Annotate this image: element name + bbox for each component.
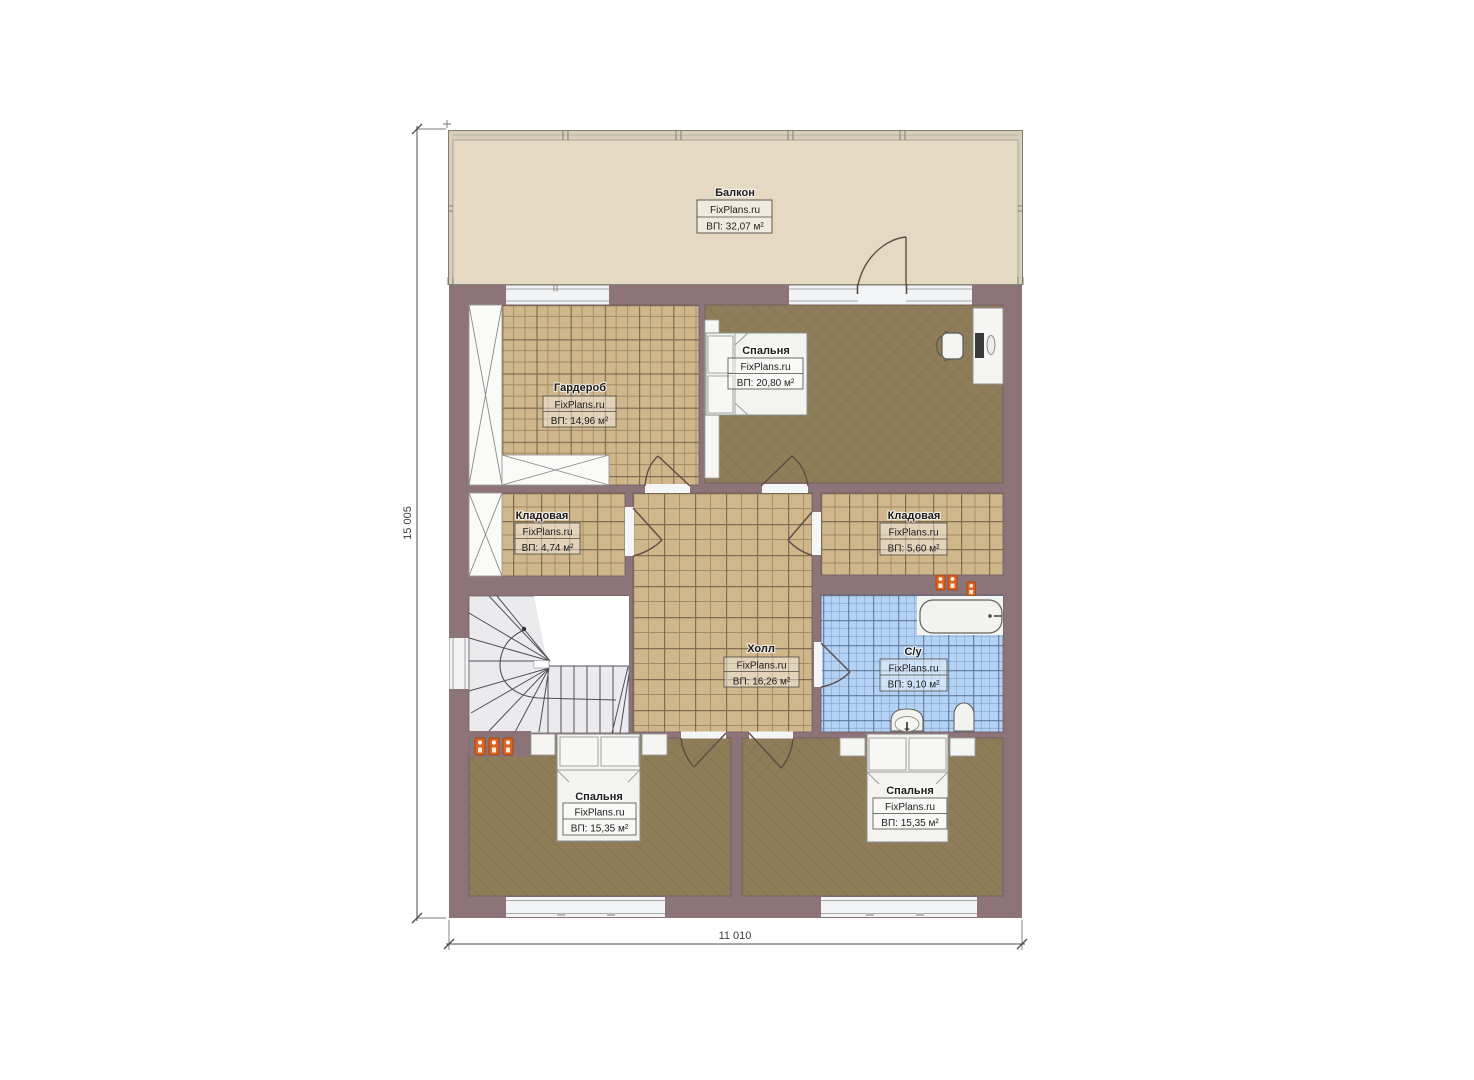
- svg-text:FixPlans.ru: FixPlans.ru: [740, 362, 790, 373]
- svg-text:15 005: 15 005: [402, 506, 414, 540]
- svg-text:FixPlans.ru: FixPlans.ru: [888, 664, 938, 675]
- svg-text:Спальня: Спальня: [742, 345, 790, 357]
- svg-text:FixPlans.ru: FixPlans.ru: [522, 527, 572, 538]
- svg-text:С/у: С/у: [904, 646, 922, 658]
- svg-text:Холл: Холл: [747, 643, 775, 655]
- svg-text:Спальня: Спальня: [575, 791, 623, 803]
- svg-text:Балкон: Балкон: [715, 187, 755, 199]
- svg-text:ВП: 16,26 м²: ВП: 16,26 м²: [733, 677, 791, 688]
- svg-text:FixPlans.ru: FixPlans.ru: [885, 802, 935, 813]
- svg-text:11 010: 11 010: [719, 930, 752, 942]
- svg-text:ВП: 32,07 м²: ВП: 32,07 м²: [706, 222, 764, 233]
- svg-text:FixPlans.ru: FixPlans.ru: [710, 205, 760, 216]
- svg-text:Кладовая: Кладовая: [516, 510, 569, 522]
- svg-text:ВП: 15,35 м²: ВП: 15,35 м²: [571, 824, 629, 835]
- svg-text:FixPlans.ru: FixPlans.ru: [574, 808, 624, 819]
- svg-text:Гардероб: Гардероб: [554, 382, 606, 394]
- svg-text:FixPlans.ru: FixPlans.ru: [736, 661, 786, 672]
- svg-text:ВП: 15,35 м²: ВП: 15,35 м²: [881, 818, 939, 829]
- svg-text:ВП: 4,74 м²: ВП: 4,74 м²: [522, 543, 575, 554]
- svg-text:ВП: 5,60 м²: ВП: 5,60 м²: [888, 544, 941, 555]
- svg-text:ВП: 9,10 м²: ВП: 9,10 м²: [888, 680, 941, 691]
- svg-text:FixPlans.ru: FixPlans.ru: [888, 528, 938, 539]
- svg-text:ВП: 20,80 м²: ВП: 20,80 м²: [737, 378, 795, 389]
- svg-text:Кладовая: Кладовая: [888, 510, 941, 522]
- svg-text:Спальня: Спальня: [886, 785, 934, 797]
- svg-text:FixPlans.ru: FixPlans.ru: [554, 400, 604, 411]
- svg-text:ВП: 14,96 м²: ВП: 14,96 м²: [551, 416, 609, 427]
